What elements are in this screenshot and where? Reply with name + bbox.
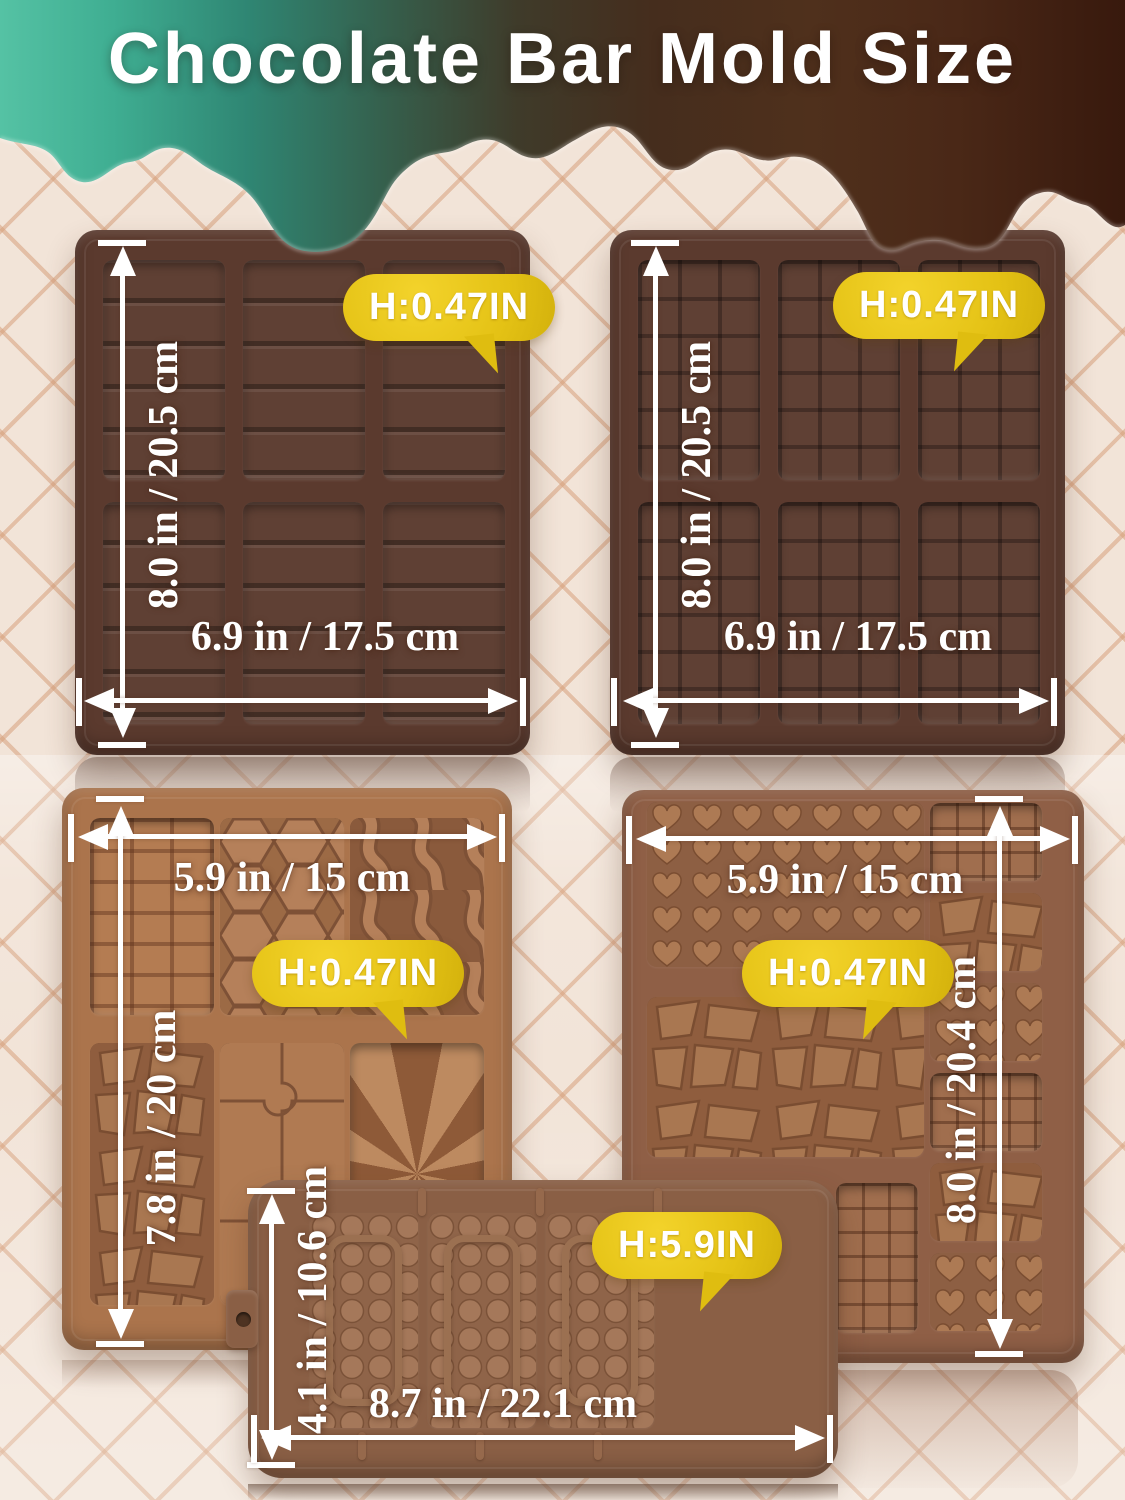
- dimension-line-horizontal: [106, 834, 469, 839]
- dimension-label: 5.9 in / 15 cm: [174, 854, 411, 902]
- depth-badge: H:0.47IN: [833, 272, 1045, 339]
- dimension-cap: [98, 240, 146, 246]
- dimension-cap: [611, 678, 617, 726]
- dimension-line-vertical: [997, 834, 1002, 1321]
- product-size-infographic: Chocolate Bar Mold Size 8.0 in / 20.5 cm…: [0, 0, 1125, 1500]
- dimension-line-horizontal: [112, 698, 490, 703]
- dimension-cap: [631, 742, 679, 748]
- tab-hole: [236, 1312, 251, 1327]
- dimension-cap: [975, 796, 1023, 802]
- dimension-label: 8.7 in / 22.1 cm: [369, 1380, 637, 1428]
- depth-badge-text: H:0.47IN: [859, 284, 1019, 326]
- dimension-cap: [827, 1415, 833, 1463]
- depth-badge-text: H:0.47IN: [768, 952, 928, 994]
- dimension-line-vertical: [120, 274, 125, 710]
- dimension-label: 6.9 in / 17.5 cm: [191, 613, 459, 661]
- dimension-cap: [247, 1188, 295, 1194]
- dimension-cap: [499, 814, 505, 862]
- dimension-cap: [975, 1351, 1023, 1357]
- depth-badge-text: H:0.47IN: [278, 952, 438, 994]
- mold-ridge: [536, 1188, 544, 1216]
- dimension-cap: [631, 240, 679, 246]
- dimension-label: 8.0 in / 20.5 cm: [673, 341, 721, 609]
- depth-badge: H:0.47IN: [343, 274, 555, 341]
- dimension-label: 5.9 in / 15 cm: [727, 856, 964, 904]
- dimension-line-horizontal: [651, 698, 1021, 703]
- dimension-label: 6.9 in / 17.5 cm: [724, 613, 992, 661]
- dimension-label: 7.8 in / 20 cm: [138, 1010, 186, 1247]
- dimension-cap: [98, 742, 146, 748]
- dimension-cap: [1051, 678, 1057, 726]
- dimension-cap: [76, 678, 82, 726]
- dimension-cap: [520, 678, 526, 726]
- dimension-line-horizontal: [289, 1435, 797, 1440]
- dimension-line-vertical: [269, 1222, 274, 1432]
- tall-grid-cavity: [836, 1183, 918, 1333]
- dimension-label: 8.0 in / 20.5 cm: [140, 341, 188, 609]
- depth-badge-text: H:5.9IN: [618, 1224, 756, 1266]
- dimension-cap: [96, 796, 144, 802]
- page-title: Chocolate Bar Mold Size: [0, 18, 1125, 100]
- depth-badge: H:0.47IN: [742, 940, 954, 1007]
- depth-badge: H:0.47IN: [252, 940, 464, 1007]
- dimension-cap: [1072, 816, 1078, 864]
- dimension-line-vertical: [653, 274, 658, 710]
- depth-badge-text: H:0.47IN: [369, 286, 529, 328]
- dimension-cap: [251, 1415, 257, 1463]
- depth-badge: H:5.9IN: [592, 1212, 782, 1279]
- grid-bar-cavity: [90, 818, 214, 1015]
- dimension-label: 4.1 in / 10.6 cm: [289, 1166, 337, 1434]
- dimension-line-vertical: [118, 834, 123, 1311]
- mold-ridge: [418, 1188, 426, 1216]
- dimension-cap: [96, 1341, 144, 1347]
- dimension-cap: [68, 814, 74, 862]
- dimension-line-horizontal: [664, 836, 1042, 841]
- dimension-cap: [626, 816, 632, 864]
